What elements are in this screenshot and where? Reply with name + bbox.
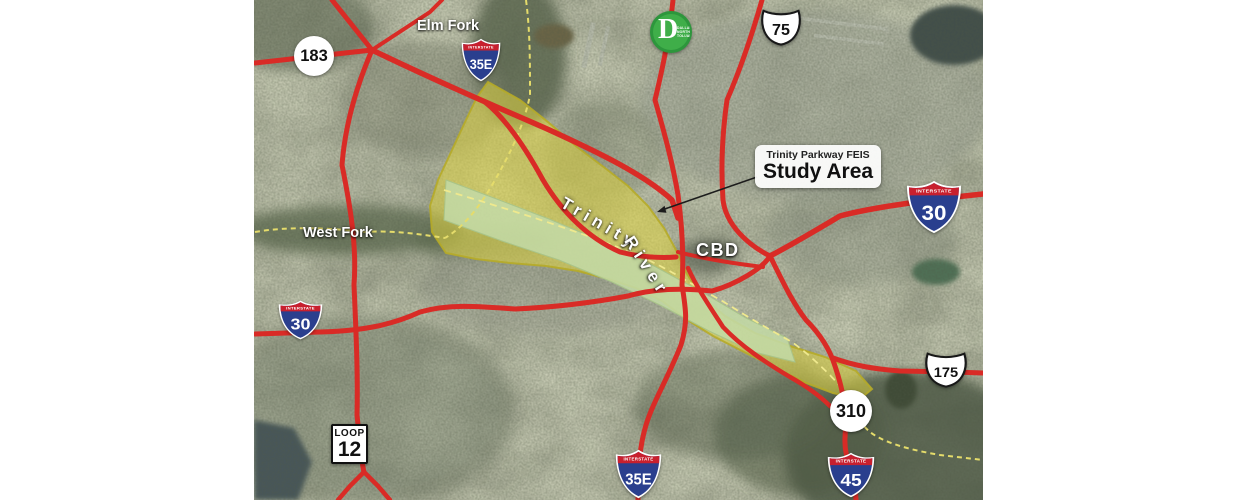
interstate-word: INTERSTATE: [624, 457, 654, 462]
trinity-parkway-study-area-map[interactable]: Elm Fork West Fork Trinity River CBD Tri…: [254, 0, 983, 500]
interstate-word: INTERSTATE: [286, 306, 315, 311]
tollway-letter: D: [658, 14, 678, 46]
us-75-number: 75: [772, 21, 790, 39]
us-175-number: 175: [934, 364, 959, 379]
i-30-east-number: 30: [922, 201, 947, 225]
i-35e-north-number: 35E: [470, 57, 493, 72]
interstate-word: INTERSTATE: [468, 45, 494, 49]
i-35e-south-number: 35E: [625, 471, 651, 488]
us-75-shield: 75: [760, 8, 802, 47]
loop-word: LOOP: [334, 429, 364, 439]
us-175-shield: 175: [924, 351, 968, 389]
tollway-small-text: DALLAS NORTH TOLLWAY: [677, 26, 690, 38]
i-30-west-shield: INTERSTATE 30: [278, 300, 323, 340]
i-30-east-shield: INTERSTATE 30: [906, 180, 962, 234]
interstate-word: INTERSTATE: [836, 459, 867, 464]
callout-line2: Study Area: [763, 161, 873, 183]
page-background: Elm Fork West Fork Trinity River CBD Tri…: [0, 0, 1235, 500]
sh-310-shield: 310: [830, 390, 872, 432]
label-west-fork: West Fork: [303, 225, 373, 241]
i-45-shield: INTERSTATE 45: [827, 452, 875, 498]
i-30-west-number: 30: [290, 316, 310, 334]
sh-310-number: 310: [836, 401, 866, 422]
i-45-number: 45: [840, 470, 861, 490]
us-183-shield: 183: [294, 36, 334, 76]
dallas-north-tollway-logo-icon: D DALLAS NORTH TOLLWAY: [650, 11, 692, 53]
loop-12-number: 12: [338, 439, 361, 460]
loop-12-shield: LOOP 12: [331, 424, 368, 464]
i-35e-south-shield: INTERSTATE 35E: [615, 449, 662, 499]
interstate-word: INTERSTATE: [916, 189, 952, 195]
study-area-callout: Trinity Parkway FEIS Study Area: [755, 145, 881, 188]
label-elm-fork: Elm Fork: [417, 18, 479, 34]
us-183-number: 183: [300, 47, 328, 66]
i-35e-north-shield: INTERSTATE 35E: [461, 38, 501, 82]
label-cbd: CBD: [696, 240, 740, 261]
